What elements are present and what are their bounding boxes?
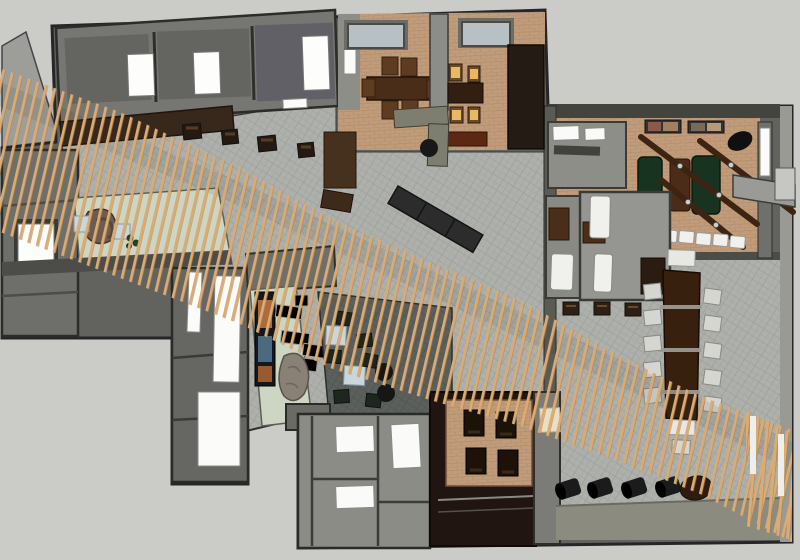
skylight bbox=[462, 22, 510, 46]
glazing-panel bbox=[198, 392, 240, 466]
room-divider-wall bbox=[252, 26, 254, 100]
waiting-stools bbox=[563, 302, 641, 316]
window bbox=[193, 52, 220, 95]
cafe-table bbox=[182, 123, 201, 140]
private-table bbox=[448, 83, 483, 103]
render-canvas bbox=[0, 0, 800, 560]
east-corridor-door bbox=[760, 128, 770, 176]
fence-post bbox=[778, 434, 784, 496]
stool bbox=[625, 303, 641, 316]
chair bbox=[643, 335, 661, 352]
fixture bbox=[336, 485, 375, 508]
lit-seat bbox=[470, 110, 478, 120]
artwork-blue bbox=[258, 336, 272, 362]
banquette-seat bbox=[713, 233, 729, 246]
chair bbox=[334, 389, 350, 403]
window bbox=[302, 36, 330, 91]
restrooms bbox=[286, 404, 430, 548]
fixture bbox=[391, 423, 421, 468]
picture-art bbox=[648, 122, 661, 131]
cafe-table bbox=[297, 142, 314, 158]
door bbox=[283, 98, 307, 108]
picture-art bbox=[663, 122, 678, 131]
window bbox=[127, 54, 154, 97]
stool bbox=[594, 302, 610, 315]
round-stool bbox=[420, 139, 438, 157]
desk bbox=[549, 208, 569, 240]
chair bbox=[643, 283, 661, 300]
lit-seat bbox=[470, 69, 478, 79]
banquette-seat bbox=[730, 235, 746, 248]
counter-white bbox=[585, 128, 605, 141]
lit-seat bbox=[452, 110, 461, 120]
dark-cabinetry bbox=[508, 45, 544, 149]
treatment-bed bbox=[550, 254, 573, 291]
banquette-seat bbox=[679, 230, 695, 243]
artwork-orange-small bbox=[258, 366, 272, 382]
counter-white bbox=[553, 126, 579, 141]
skylight bbox=[348, 24, 404, 48]
dining-table bbox=[367, 77, 433, 100]
chair bbox=[401, 58, 417, 76]
table-end-cap bbox=[668, 250, 696, 267]
chair bbox=[362, 79, 375, 97]
beam-cap bbox=[775, 168, 795, 200]
cafe-table bbox=[221, 129, 238, 145]
fixture bbox=[336, 425, 375, 452]
chair bbox=[643, 309, 661, 326]
banquette-seat bbox=[696, 232, 712, 245]
lit-seat bbox=[451, 67, 460, 78]
chair bbox=[703, 315, 722, 332]
treatment-bed bbox=[593, 254, 612, 293]
tall-cabinet bbox=[324, 132, 356, 188]
chair bbox=[703, 288, 722, 305]
chair bbox=[703, 342, 722, 359]
picture-art bbox=[707, 123, 721, 131]
dark-counter bbox=[554, 145, 600, 156]
games-room-north-wall bbox=[548, 104, 780, 118]
chair bbox=[703, 369, 722, 386]
fence-post bbox=[750, 416, 756, 474]
cafe-table bbox=[257, 135, 276, 152]
partition-wall bbox=[430, 14, 448, 110]
treatment-bed bbox=[590, 196, 611, 238]
chair bbox=[382, 57, 398, 75]
rock-feature bbox=[279, 353, 309, 400]
picture-art bbox=[691, 123, 705, 131]
stool bbox=[563, 302, 579, 315]
floor-plan-render bbox=[0, 0, 800, 560]
